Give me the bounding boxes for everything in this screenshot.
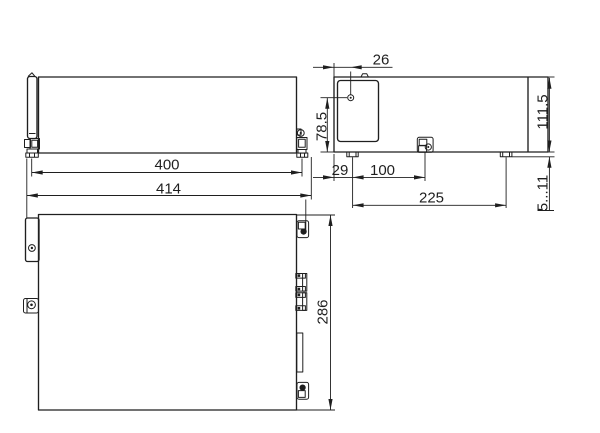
front-view [25, 73, 308, 157]
bottom-clamp-2 [296, 293, 307, 311]
bottom-top-latch [297, 221, 309, 238]
dim-body-height: 111.5 [535, 77, 555, 152]
dim-label-hole-offset-x: 26 [373, 51, 390, 68]
dim-label-mounting-width: 400 [154, 157, 179, 174]
bottom-view [24, 215, 309, 411]
dim-foot-height-range: 5...11 [512, 157, 555, 211]
bottom-clamp-1 [296, 274, 307, 292]
dim-label-foot-pitch: 225 [419, 190, 444, 207]
side-body [334, 77, 548, 152]
dim-hole-offset-y: 78.5 [313, 98, 347, 152]
dim-body-depth: 286 [297, 215, 336, 410]
bottom-mounting-tab [26, 218, 40, 262]
dim-label-overall-width: 414 [156, 181, 181, 198]
side-right-foot [500, 152, 512, 157]
bottom-body [39, 215, 297, 411]
bottom-bottom-latch [297, 382, 309, 399]
dim-label-foot-height-range: 5...11 [535, 175, 552, 211]
dim-label-hole-offset-y: 78.5 [313, 112, 330, 141]
front-body [39, 77, 297, 153]
side-left-foot [347, 152, 358, 157]
bottom-left-latch [24, 299, 39, 314]
side-clamp-bracket [417, 137, 433, 152]
front-hinge-bar [28, 73, 38, 139]
dim-mounting-width: 400 [32, 157, 302, 177]
dim-label-foot-inset: 29 [332, 162, 349, 179]
dim-hole-offset-x: 26 [313, 51, 393, 94]
bottom-slot [297, 333, 303, 372]
front-left-latch [25, 139, 40, 158]
front-right-latch [297, 129, 308, 157]
dim-label-foot-to-clamp: 100 [370, 162, 395, 179]
side-terminal-box [338, 81, 379, 142]
dim-foot-inset-and-clamp: 29 100 [313, 153, 425, 209]
drawing-page: 400 414 [0, 0, 600, 433]
side-view [334, 74, 548, 157]
technical-drawing: 400 414 [0, 0, 600, 433]
dim-label-body-depth: 286 [315, 299, 332, 324]
dim-label-body-height: 111.5 [535, 94, 552, 129]
